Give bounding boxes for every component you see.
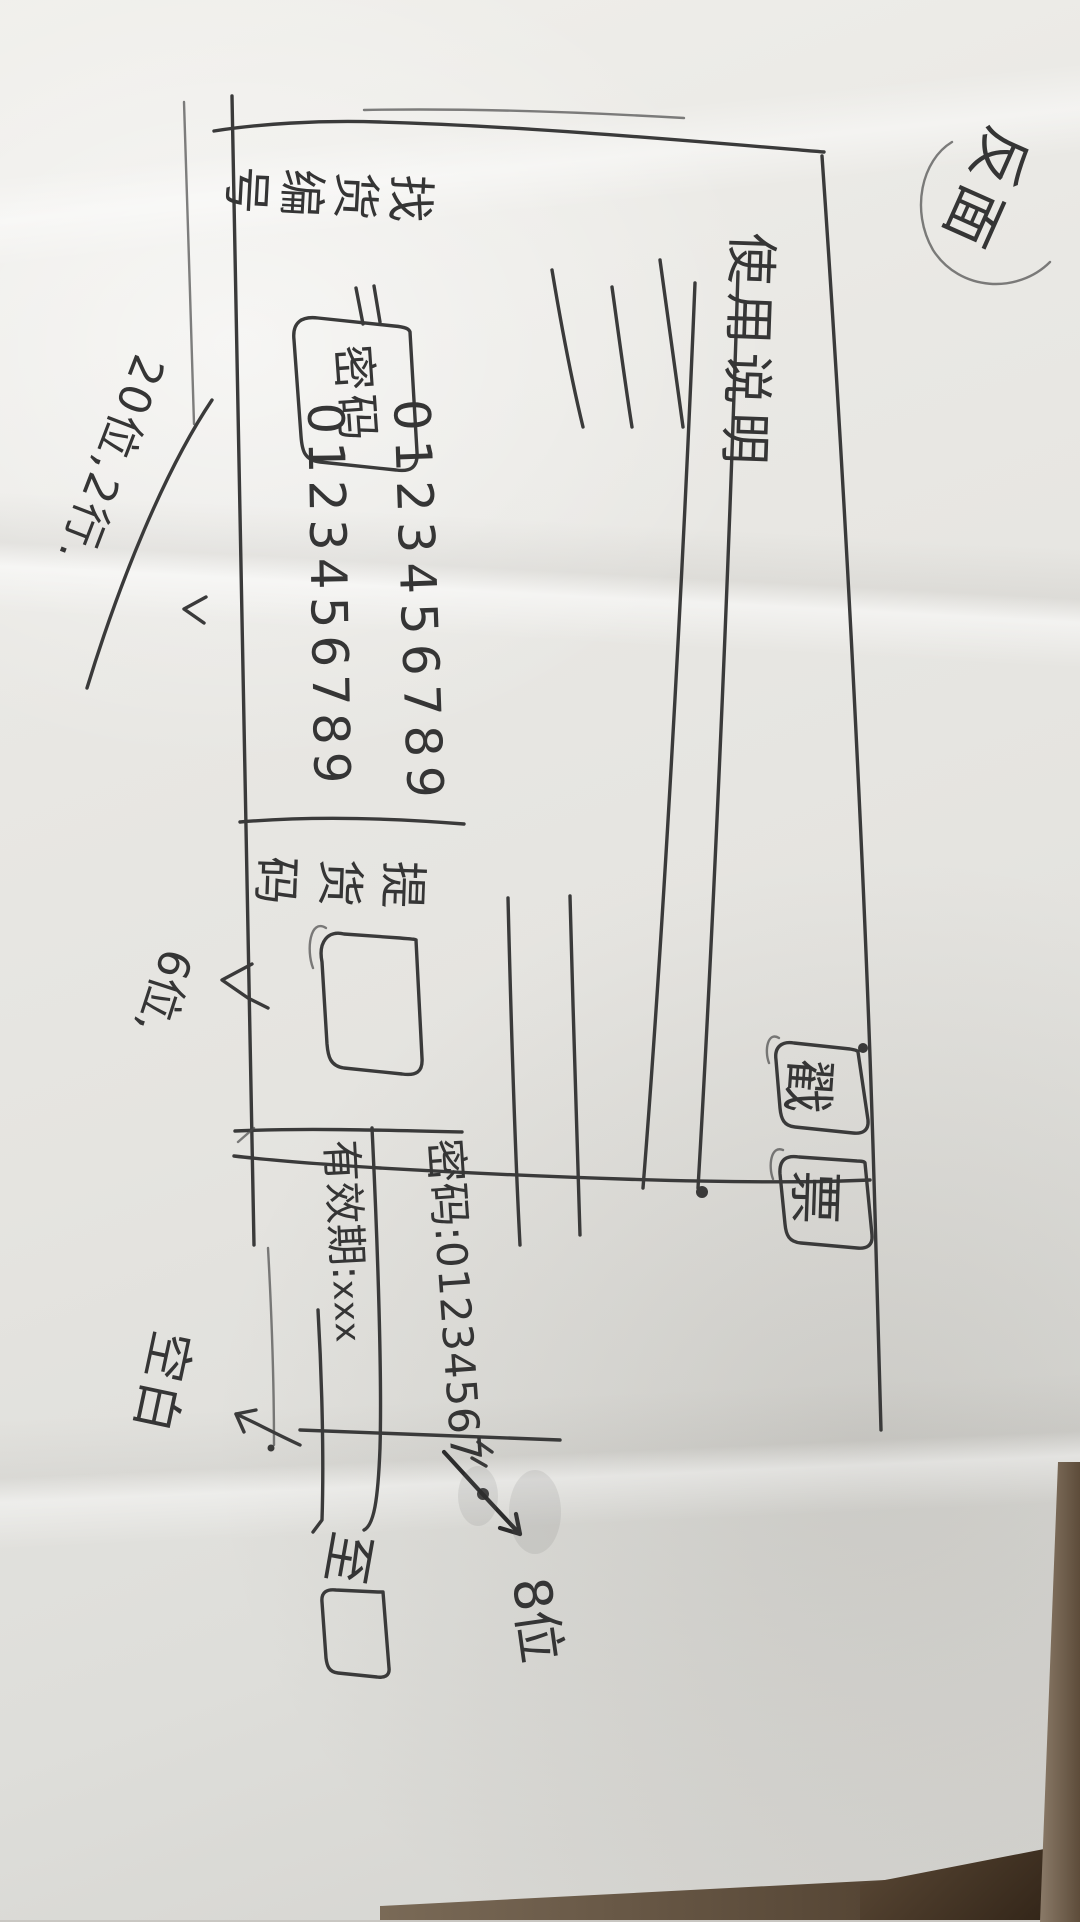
panel-validity-row: 有效期:xxx — [313, 1138, 385, 1344]
panel-validity-label: 有效期: — [316, 1138, 372, 1281]
text-line-3 — [552, 270, 583, 427]
header-rule-2 — [643, 283, 695, 1188]
placeholder-lines — [552, 260, 683, 427]
equals-sign — [356, 286, 380, 324]
digits-row-2: 0123456789 — [296, 402, 361, 791]
stamp-box-1-char: 戳 — [771, 1056, 854, 1115]
panel-password-value: 01234567 — [426, 1239, 490, 1464]
graphite-smudge — [509, 1470, 561, 1554]
ink-blob — [858, 1043, 868, 1053]
ink-dot — [268, 1445, 275, 1452]
panel-lower-rule — [268, 1248, 274, 1445]
blank-note-arrow — [236, 1414, 300, 1445]
panel-top-rule-1 — [570, 896, 580, 1235]
to-date-box-outline — [322, 1590, 389, 1677]
graphite-smudge — [458, 1466, 498, 1526]
digits-note-arrowhead — [184, 597, 206, 623]
card-left-edge-2 — [364, 109, 684, 118]
text-line-1 — [660, 260, 683, 427]
photo-of-sketch: { "sketch": { "corner_label": "反面", "car… — [0, 0, 1080, 1920]
panel-validity-value: xxx — [324, 1279, 367, 1344]
card-left-edge — [214, 121, 824, 152]
sketch-canvas: 反面 使用说明 戳 票 找货编号 密码 0123456789 012345678… — [0, 0, 1080, 1920]
panel-top-rule-2 — [508, 898, 520, 1245]
cell-divider-2 — [235, 1129, 462, 1132]
cell-divider-1 — [240, 818, 464, 824]
text-line-2 — [612, 287, 632, 427]
pickup-row-label: 提货码 — [242, 855, 434, 914]
password-note: 8位 — [498, 1572, 584, 1667]
pickup-code-box-outline — [321, 933, 422, 1074]
card-bottom-edge-2 — [184, 102, 194, 424]
card-bottom-edge — [232, 96, 254, 1245]
stamp-box-2-char: 票 — [779, 1169, 860, 1226]
validity-blank-line — [313, 1310, 323, 1532]
panel-password-label: 密码: — [418, 1137, 476, 1243]
card-title: 使用说明 — [711, 231, 794, 473]
code-note-arrowhead — [222, 964, 268, 1008]
panel-right-rule — [300, 1430, 560, 1440]
